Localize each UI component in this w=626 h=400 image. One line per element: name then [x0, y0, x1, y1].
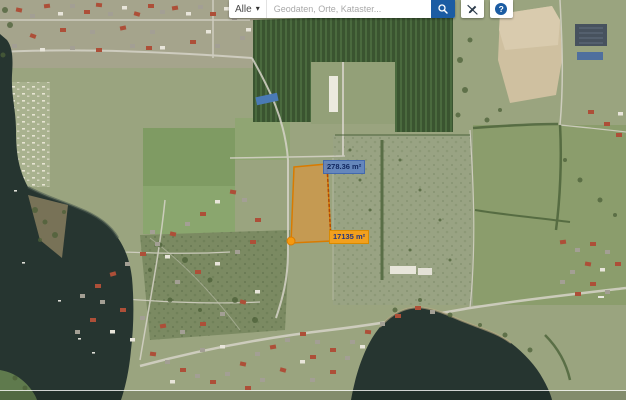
- category-dropdown[interactable]: Alle ▾: [229, 0, 267, 18]
- search-toolbar: Alle ▾ ?: [229, 0, 513, 18]
- area-label-selected: 278.36 m²: [323, 160, 365, 174]
- area-label: 17135 m²: [329, 230, 369, 244]
- draw-tool-button[interactable]: [461, 0, 484, 18]
- search-input[interactable]: [267, 0, 431, 18]
- parcel-overlay: [287, 164, 331, 245]
- search-group: Alle ▾: [229, 0, 455, 18]
- measure-vertex-marker[interactable]: [287, 237, 295, 245]
- parcel-polygon: [291, 164, 331, 243]
- category-dropdown-value: Alle: [235, 4, 252, 15]
- help-button[interactable]: ?: [490, 0, 513, 18]
- chevron-down-icon: ▾: [256, 5, 260, 13]
- search-button[interactable]: [431, 0, 455, 18]
- help-icon: ?: [495, 3, 507, 15]
- map-canvas[interactable]: [0, 0, 626, 400]
- bottom-shade: [0, 391, 626, 400]
- pen-slash-icon: [466, 3, 479, 16]
- search-icon: [437, 3, 449, 15]
- tan-field: [498, 6, 562, 103]
- orchard: [253, 18, 453, 132]
